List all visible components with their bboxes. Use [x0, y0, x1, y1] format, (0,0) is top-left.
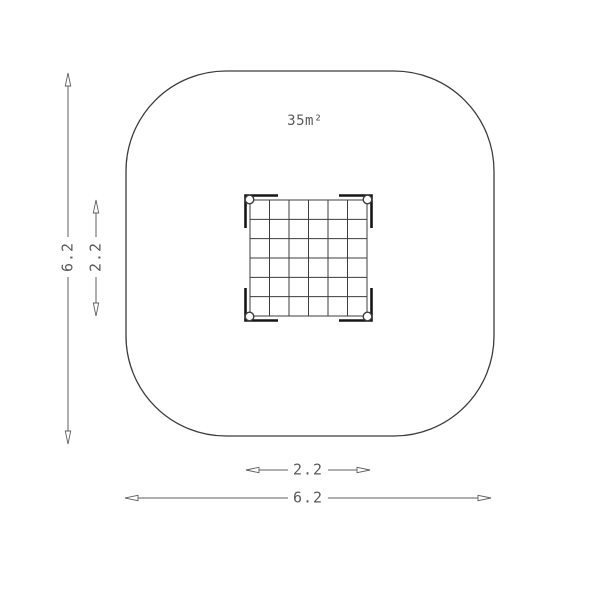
post-top-left: [245, 195, 254, 204]
plan-drawing: 35m² 6.2 2.2 2.2 6.2: [0, 0, 600, 600]
plan-linework: [0, 0, 600, 600]
post-bottom-left: [245, 312, 254, 321]
post-bottom-right: [363, 312, 372, 321]
arrow-up-icon: [93, 200, 98, 213]
dim-outer-width-label: 6.2: [288, 490, 328, 507]
arrow-down-icon: [93, 303, 98, 316]
arrow-right-icon: [357, 467, 370, 472]
dim-inner-height-label: 2.2: [88, 237, 105, 277]
arrow-left-icon: [246, 467, 259, 472]
arrow-right-icon: [478, 495, 491, 500]
arrow-down-icon: [65, 431, 70, 444]
post-top-right: [363, 195, 372, 204]
net-grid: [250, 200, 367, 316]
arrow-up-icon: [65, 73, 70, 86]
dim-inner-width-label: 2.2: [288, 462, 328, 479]
area-label: 35m²: [282, 113, 328, 129]
dim-outer-height-label: 6.2: [60, 237, 77, 277]
net-grid-lines: [250, 200, 367, 316]
arrow-left-icon: [125, 495, 138, 500]
